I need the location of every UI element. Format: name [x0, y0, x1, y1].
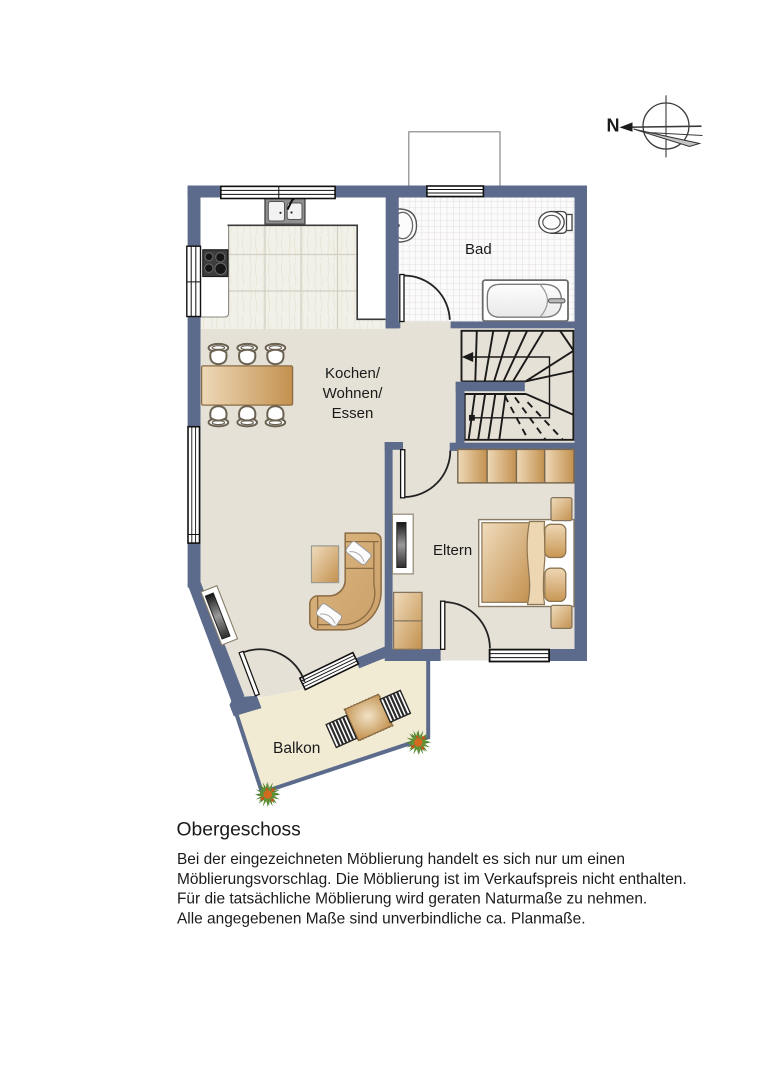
svg-text:Wohnen/: Wohnen/ — [323, 385, 384, 402]
svg-text:Für die tatsächliche Möblierun: Für die tatsächliche Möblierung wird ger… — [177, 891, 647, 908]
svg-text:Essen: Essen — [332, 405, 374, 422]
svg-text:Möblierungsvorschlag. Die Möbl: Möblierungsvorschlag. Die Möblierung ist… — [177, 871, 687, 888]
svg-text:Alle angegebenen Maße sind unv: Alle angegebenen Maße sind unverbindlich… — [177, 910, 586, 927]
svg-text:Bei der eingezeichneten Möblie: Bei der eingezeichneten Möblierung hande… — [177, 851, 625, 868]
svg-text:Kochen/: Kochen/ — [325, 365, 381, 382]
svg-text:Obergeschoss: Obergeschoss — [177, 820, 301, 841]
svg-text:N: N — [607, 116, 620, 136]
svg-text:Balkon: Balkon — [273, 740, 320, 757]
svg-text:Bad: Bad — [465, 241, 492, 258]
svg-text:Eltern: Eltern — [433, 542, 472, 559]
